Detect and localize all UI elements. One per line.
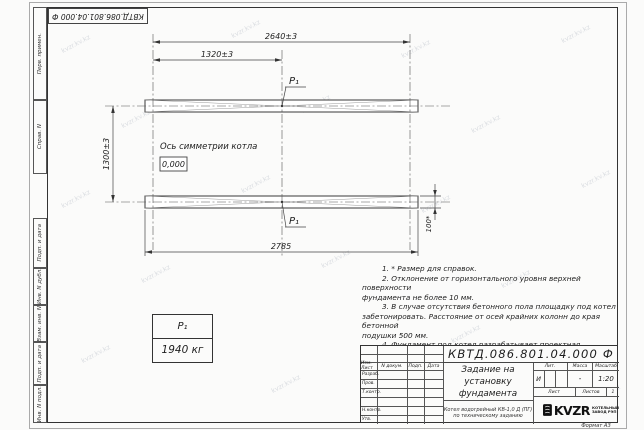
col-header-docnum: N докум. [377,362,407,370]
corner-doc-number-stamp: КВТД.086.801.04.000 Ф [48,8,148,24]
doc-number-cell: КВТД.086.801.04.000 Ф [443,346,619,363]
level-mark: 0,000 [160,157,187,171]
load-point-top-label: P₁ [289,76,299,87]
load-table-value: 1940 кг [153,339,212,361]
doc-number: КВТД.086.801.04.000 Ф [448,347,614,361]
company-logo-cell: KVZR КОТЕЛЬНЫЙ ЗАВОД РЭП [533,397,619,423]
product-line: Котел водогрейный КВ-1,0 Д (ПГ) [444,407,532,413]
level-mark-value: 0,000 [162,160,185,169]
title-block: Изм. Лист N докум. Подп. Дата Разраб. Пр… [360,345,618,423]
document-title-line: установку [459,376,517,388]
drawing-sheet: kvzr.kv.kz kvzr.kv.kz kvzr.kv.kz kvzr.kv… [0,0,644,430]
sheet-label: Лист [533,388,576,397]
scale-value: 1:20 [593,371,619,388]
corner-doc-number: КВТД.086.801.04.000 Ф [52,12,144,21]
row-label-prov: Пров. [361,379,377,388]
grid-line [407,346,408,424]
kvzr-logo-emblem [543,402,552,418]
lit-cell-2 [545,371,556,388]
note-line: 1. * Размер для справок. [362,264,616,274]
lit-cell-3 [556,371,568,388]
dim-100-label: 100* [425,215,433,232]
dim-2640-label: 2640±3 [265,32,297,41]
col-header-podp: Подп. [407,362,424,370]
dim-1320-label: 1320±3 [201,50,233,59]
axis-lines [105,34,452,256]
dimension-left-vertical: 1300±3 [102,106,115,202]
document-title-cell: Задание на установку фундамента [443,363,533,401]
row-label-tkontr: Т.контр. [361,388,377,397]
row-label-utv: Утв. [361,415,377,424]
row-label-nkontr: Н.контр. [361,406,377,415]
lit-header: Лит. [533,363,568,371]
note-line: 2. Отклонение от горизонтального уровня … [362,274,616,293]
company-caption-line: ЗАВОД РЭП [592,410,619,414]
load-point-bottom-label: P₁ [289,216,299,227]
dim-2785-label: 2785 [271,242,291,251]
row-label-razrab: Разраб. [361,370,377,379]
product-line: по техническому заданию [444,413,532,419]
dim-1300-label: 1300±3 [102,138,111,170]
mass-value: - [568,371,593,388]
note-line: фундамента не более 10 мм. [362,293,616,303]
col-header-data: Дата [424,362,443,370]
grid-line [424,346,425,424]
dimension-top-full: 2640±3 [153,32,410,44]
dimension-top-half: 1320±3 [153,50,282,62]
product-cell: Котел водогрейный КВ-1,0 Д (ПГ) по техни… [443,401,533,424]
note-line: забетонировать. Расстояние от осей крайн… [362,312,616,331]
mass-header: Масса [568,363,593,371]
format-note: Формат А3 [570,423,622,429]
dimension-bottom: 2785 [145,242,418,254]
sheets-label: Листов [576,388,607,397]
load-table-header: P₁ [153,315,212,339]
scale-header: Масштаб [593,363,619,371]
row-label-blank [361,397,377,406]
document-title-line: Задание на [459,364,517,376]
load-table: P₁ 1940 кг [152,314,213,363]
note-line: 3. В случае отсутствия бетонного пола пл… [362,302,616,312]
company-logo-name: KVZR [554,403,590,418]
document-title-line: фундамента [459,388,517,400]
grid-line [361,354,443,355]
lit-value: И [533,371,545,388]
symmetry-axis-label: Ось симметрии котла [160,142,257,152]
sheets-value: 1 [607,388,619,397]
note-line: подушки 500 мм. [362,331,616,341]
col-header-izm-list: Изм. Лист [361,362,377,370]
